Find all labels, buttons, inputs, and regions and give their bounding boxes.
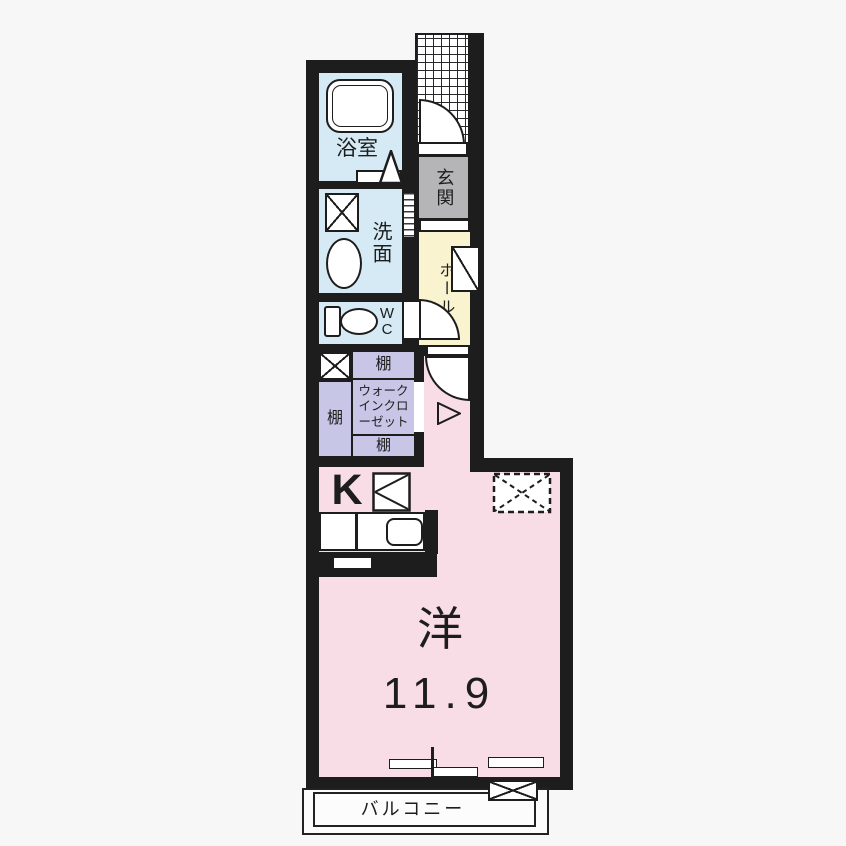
main-window-pane-left [389, 759, 437, 769]
kitchen-sink-icon [386, 518, 423, 546]
shoe-cabinet-icon [451, 246, 480, 292]
refrigerator-space-icon [492, 472, 552, 514]
hall-room-threshold [426, 345, 470, 356]
window-center-tick [431, 747, 434, 778]
wall-porch-right [470, 33, 484, 143]
western-room-label: 洋 [370, 602, 510, 656]
sub-window [488, 757, 544, 768]
washbasin-icon [326, 238, 362, 289]
walk-in-closet: ウォーク インクロ ーゼット [353, 380, 414, 434]
closet-door-arrow-icon [437, 402, 461, 425]
entrance-floor: 玄関 [419, 157, 468, 218]
washroom-label: 洗面 [364, 198, 396, 288]
main-window-pane-right [432, 767, 478, 777]
kitchen-counter-divider [355, 514, 358, 549]
entrance-threshold [417, 142, 468, 156]
bathroom-door-triangle-icon [379, 150, 403, 184]
kitchen-label: K [324, 468, 370, 514]
bathtub-icon [326, 79, 394, 133]
wc-door-opening [404, 302, 419, 338]
walk-in-closet-line3: ーゼット [358, 415, 408, 431]
balcony-label: バルコニー [323, 798, 503, 822]
washroom-folding-door-icon [403, 192, 415, 238]
bathtub-inner-line [332, 85, 388, 127]
shelf-bottom: 棚 [353, 436, 414, 456]
stove-icon [372, 472, 411, 512]
pipe-space-icon [319, 352, 351, 380]
wc-label-c: C [382, 322, 393, 339]
shelf-top: 棚 [353, 352, 414, 378]
walk-in-closet-line2: インクロ [358, 399, 408, 415]
washing-machine-pan-icon [325, 193, 359, 232]
walk-in-closet-line1: ウォーク [358, 384, 408, 400]
wc-label-w: W [380, 306, 394, 323]
western-room-size: 11.9 [340, 668, 540, 720]
shelf-left: 棚 [319, 382, 351, 456]
toilet-tank-icon [324, 306, 341, 337]
kitchen-wall-stub [425, 510, 438, 554]
kitchen-wall-window [334, 558, 371, 568]
entrance-step [419, 219, 470, 232]
toilet-bowl-icon [340, 308, 378, 335]
balcony-equipment-icon [488, 780, 538, 801]
kitchen-lower-wall [313, 552, 437, 577]
floor-plan: 浴室 洗面 W C 棚 棚 ウォーク インクロ ーゼット 棚 玄関 ホール K [0, 0, 846, 846]
wc-label: W C [376, 302, 398, 342]
closet-door-opening [414, 382, 424, 432]
